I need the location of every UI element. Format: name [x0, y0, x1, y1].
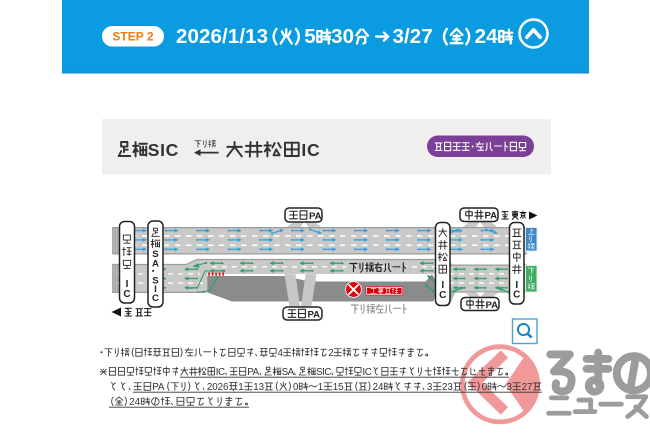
svg-text:23: 23 [442, 382, 453, 393]
svg-text:13: 13 [253, 382, 264, 393]
svg-text:A: A [152, 259, 159, 270]
svg-text:1: 1 [238, 382, 243, 393]
svg-text:PA: PA [308, 310, 321, 321]
svg-text:PA: PA [486, 300, 499, 311]
svg-text:C: C [513, 290, 520, 301]
svg-text:0: 0 [482, 382, 488, 393]
svg-text:4: 4 [278, 348, 284, 359]
svg-text:5: 5 [304, 25, 316, 48]
svg-text:IC: IC [216, 367, 225, 378]
svg-text:24: 24 [475, 25, 499, 48]
svg-text:STEP 2: STEP 2 [112, 30, 153, 44]
svg-text:SA: SA [282, 367, 295, 378]
svg-text:IC: IC [301, 140, 320, 160]
svg-text:27: 27 [522, 382, 533, 393]
svg-text:15: 15 [333, 382, 344, 393]
svg-text:SIC: SIC [316, 367, 331, 378]
svg-text:IC: IC [362, 367, 371, 378]
svg-text:3: 3 [427, 382, 433, 393]
svg-text:30: 30 [331, 25, 354, 48]
svg-text:3: 3 [507, 382, 513, 393]
svg-text:2026/1/13: 2026/1/13 [176, 25, 268, 48]
svg-text:C: C [123, 289, 130, 300]
svg-text:0: 0 [293, 382, 299, 393]
svg-text:2: 2 [328, 348, 333, 359]
svg-text:3/27: 3/27 [393, 25, 433, 48]
svg-text:24: 24 [373, 382, 384, 393]
svg-text:PA: PA [485, 211, 498, 222]
svg-text:2026: 2026 [207, 382, 229, 393]
svg-text:1: 1 [318, 382, 323, 393]
svg-text:PA: PA [247, 367, 259, 378]
svg-text:C: C [152, 293, 159, 304]
svg-text:PA: PA [309, 211, 322, 222]
svg-text:24: 24 [129, 397, 141, 408]
svg-text:SIC: SIC [148, 140, 179, 160]
svg-text:PA: PA [152, 382, 165, 393]
svg-text:C: C [439, 290, 446, 301]
